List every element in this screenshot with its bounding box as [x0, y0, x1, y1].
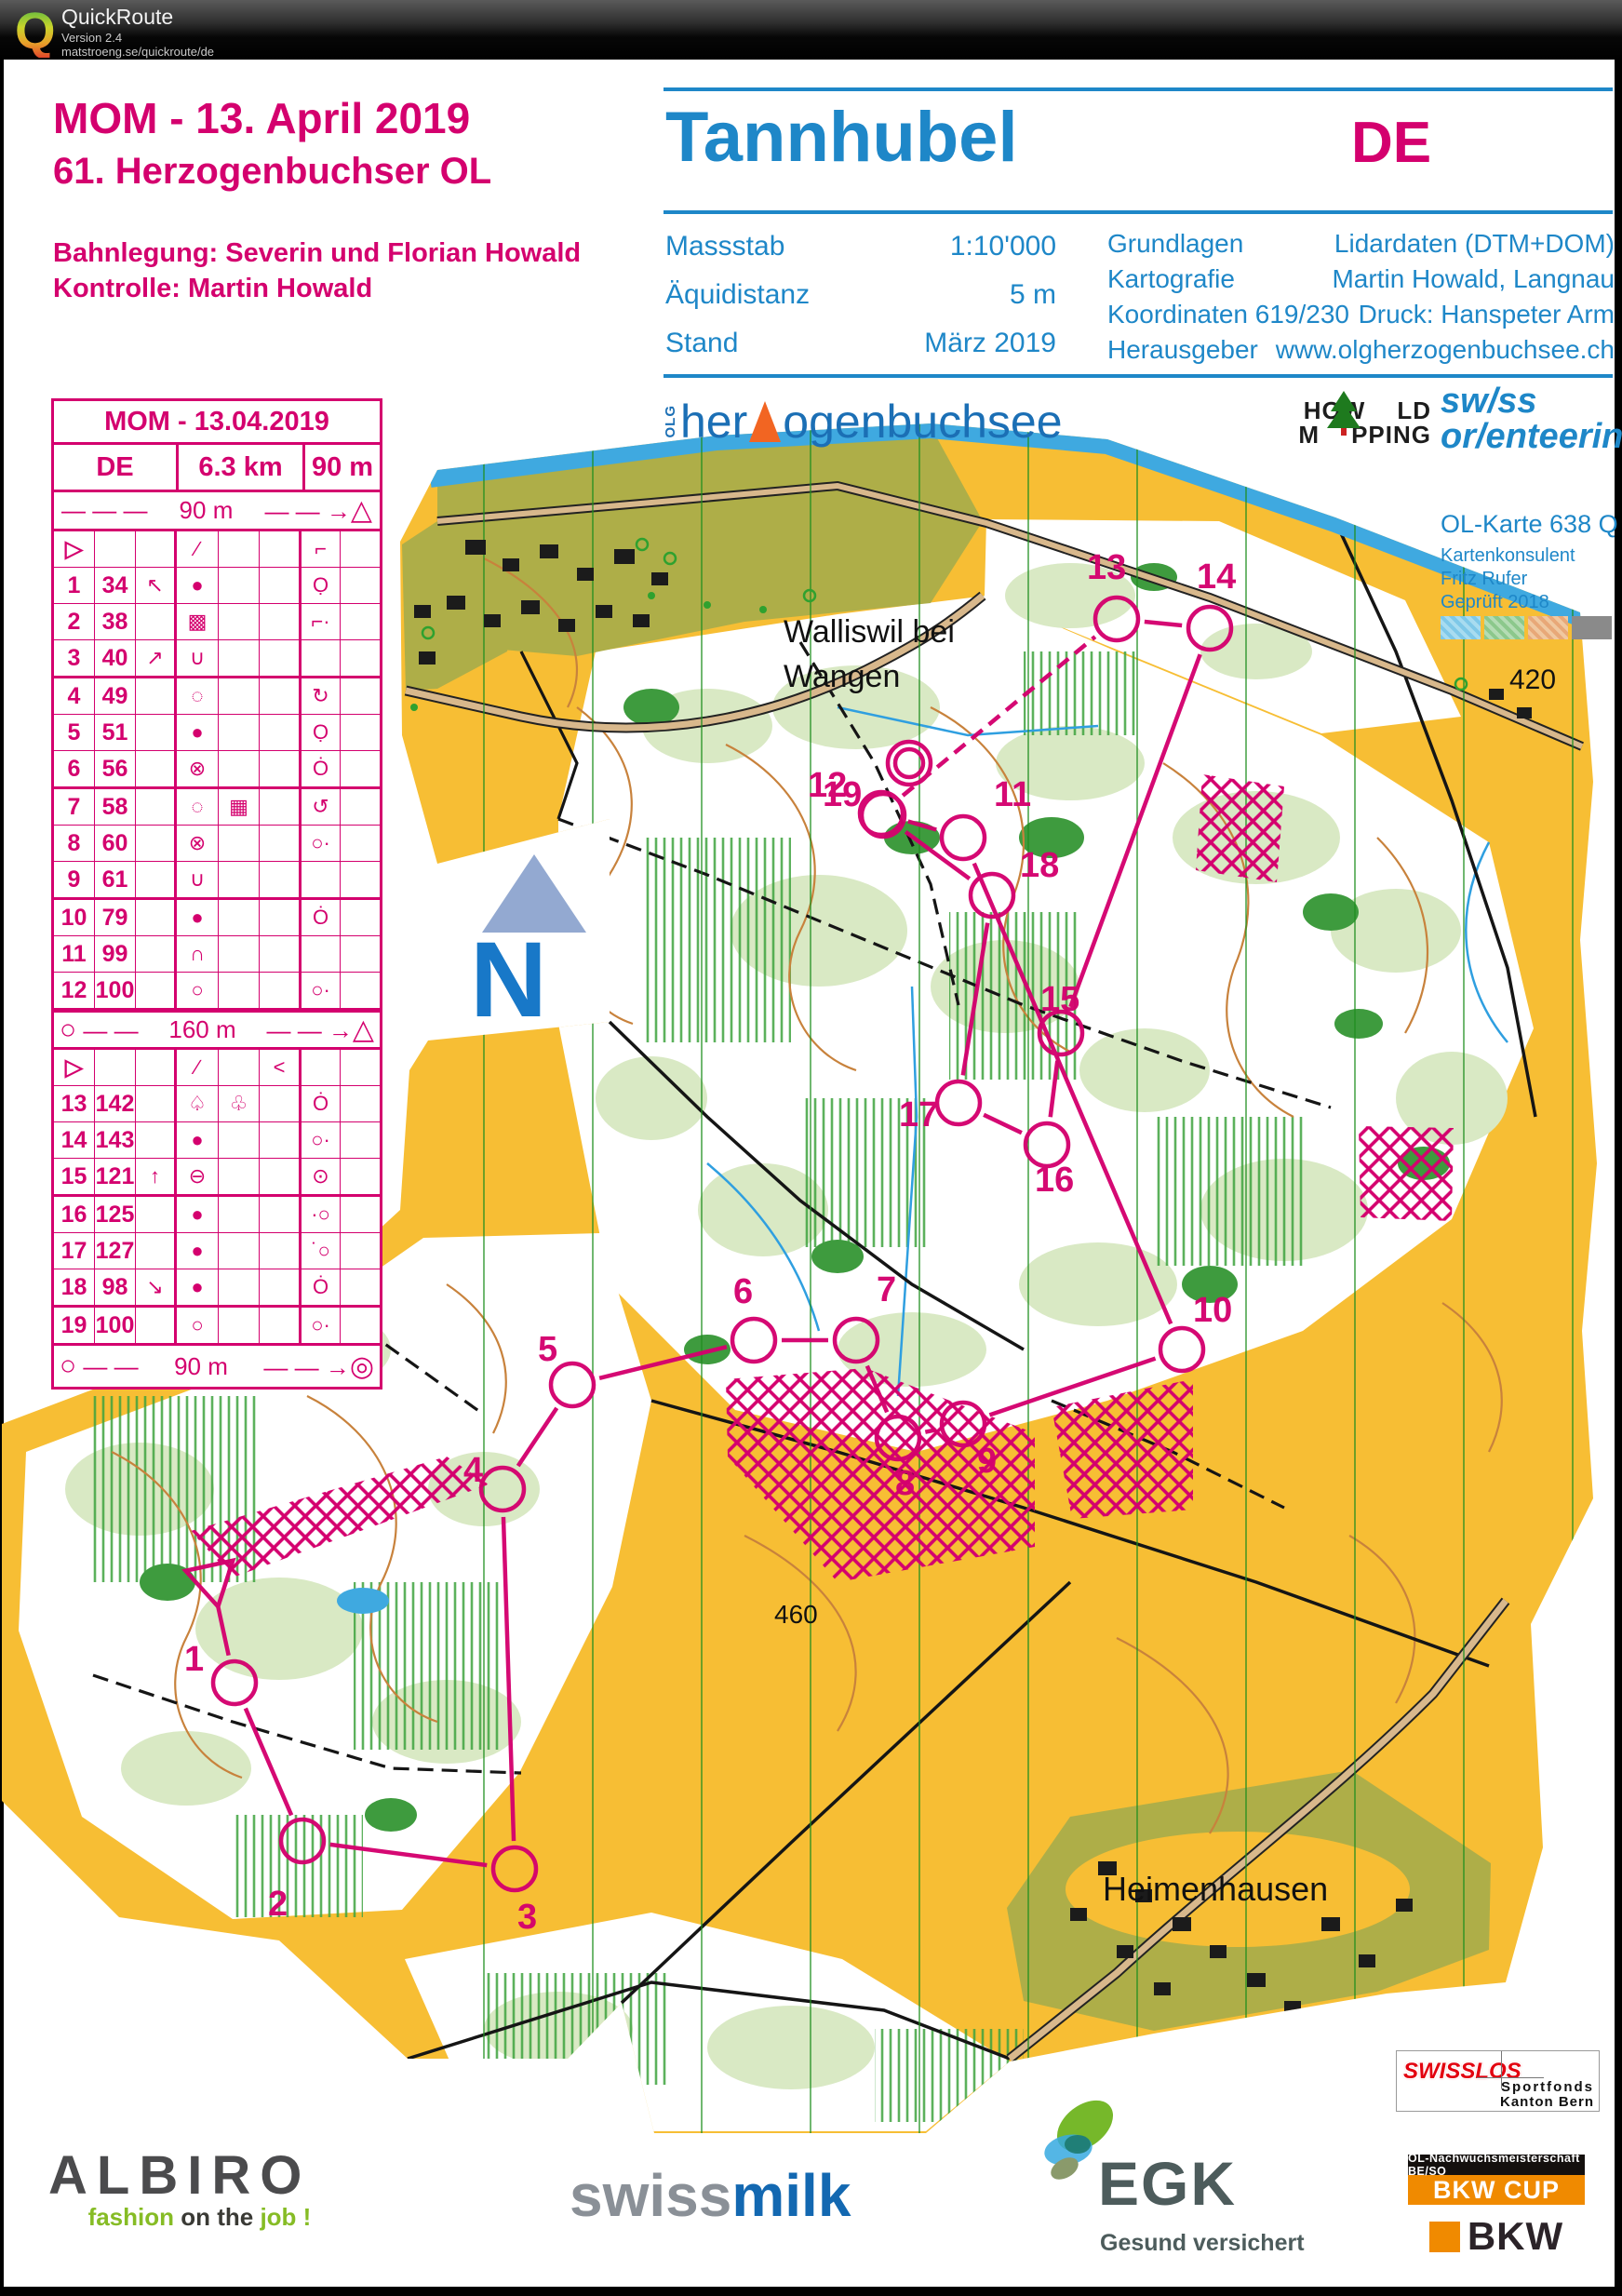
svg-text:N: N	[470, 920, 547, 1040]
control-number: 6	[733, 1272, 753, 1311]
control-row: 340↗∪	[54, 640, 380, 678]
svg-text:Q: Q	[15, 2, 56, 58]
swatch-gray	[1572, 616, 1612, 639]
course-leg	[925, 1430, 935, 1431]
bkw-cup-logo: OL-Nachwuchsmeisterschaft BE/SO BKW CUP …	[1408, 2155, 1585, 2259]
divider-bottom	[664, 374, 1613, 378]
info-grundlagen: GrundlagenLidardaten (DTM+DOM)	[1107, 229, 1615, 259]
tree-icon	[1327, 391, 1361, 436]
quickroute-logo-icon: Q	[13, 2, 58, 58]
control-number: 19	[823, 775, 862, 814]
geprueft-label: Geprüft 2018	[1441, 592, 1549, 613]
control-number: 15	[1040, 980, 1079, 1019]
app-version: Version 2.4	[61, 31, 122, 45]
control-row: 551●Ọ	[54, 715, 380, 751]
ol-karte-number: OL-Karte 638 Q	[1441, 510, 1618, 539]
divider-mid	[664, 210, 1613, 214]
bkw-square-icon	[1429, 2222, 1460, 2252]
swatch-orange	[1528, 616, 1568, 639]
event-title: MOM - 13. April 2019	[53, 93, 470, 143]
control-number: 10	[1193, 1291, 1232, 1330]
control-number: 11	[994, 775, 1031, 814]
info-kartografie: KartografieMartin Howald, Langnau	[1107, 264, 1615, 294]
swissmilk-logo: swissmilk	[570, 2161, 851, 2230]
control-row: 1199∩	[54, 936, 380, 973]
info-herausgeber: Herausgeberwww.olgherzogenbuchsee.ch	[1107, 335, 1615, 365]
control-row: 656⊗Ȯ	[54, 751, 380, 789]
control-number: 13	[1087, 548, 1126, 587]
pond	[337, 1588, 389, 1614]
control-row: ▷∕<	[54, 1050, 380, 1086]
info-koordinaten: Koordinaten 619/230Druck: Hanspeter Arm	[1107, 300, 1615, 329]
swisslos-logo: SWISSLOS Sportfonds Kanton Bern	[1396, 2050, 1600, 2112]
card-marked-route: ○ — —160 m— — →△	[54, 1011, 380, 1050]
window-titlebar[interactable]: Q QuickRoute Version 2.4 matstroeng.se/q…	[0, 0, 1622, 60]
north-arrow: N	[470, 854, 586, 1040]
control-number: 3	[517, 1898, 537, 1937]
control-row: ▷∕⌐	[54, 531, 380, 568]
course-code: DE	[1351, 110, 1431, 176]
map-color-swatches	[1441, 616, 1612, 639]
control-number: 1	[184, 1640, 204, 1679]
info-massstab: Massstab1:10'000	[665, 231, 1056, 262]
control-number: 7	[877, 1270, 896, 1309]
label-heimenhausen: Heimenhausen	[1103, 1870, 1328, 1908]
swiss-orienteering-logo: sw/ss or/enteering	[1441, 383, 1622, 454]
controller: Kontrolle: Martin Howald	[53, 274, 372, 304]
quickroute-window: { "titlebar": { "app": "QuickRoute", "ve…	[0, 0, 1622, 2296]
card-start-distance: — — —90 m— — →△	[54, 492, 380, 531]
control-number: 17	[899, 1095, 938, 1135]
swatch-blue	[1441, 616, 1481, 639]
control-row: 238▩⌐·	[54, 604, 380, 640]
control-number: 4	[463, 1451, 483, 1490]
control-row: 13142♤♧Ȯ	[54, 1086, 380, 1122]
control-number: 8	[895, 1464, 915, 1503]
control-description-sheet: MOM - 13.04.2019DE6.3 km90 m— — —90 m— —…	[51, 398, 382, 1390]
olg-herzogenbuchsee-logo: OLG her ogenbuchsee	[663, 395, 1063, 449]
egk-logo: EGK Gesund versichert	[1040, 2092, 1338, 2199]
swatch-green	[1484, 616, 1524, 639]
info-aequidistanz: Äquidistanz5 m	[665, 279, 1056, 311]
card-finish-distance: ○ — —90 m— — →◎	[54, 1344, 380, 1387]
control-row: 961∪	[54, 862, 380, 900]
label-elevation-420: 420	[1509, 665, 1556, 695]
app-title: QuickRoute	[61, 5, 173, 30]
control-row: 134↖●Ọ	[54, 568, 380, 604]
kartenkonsulent-name: Fritz Rufer	[1441, 569, 1527, 590]
control-row: 19100○○·	[54, 1308, 380, 1344]
control-number: 5	[538, 1330, 557, 1369]
course-setter: Bahnlegung: Severin und Florian Howald	[53, 238, 581, 269]
albiro-logo: ALBIRO fashion on the job !	[48, 2144, 311, 2232]
label-elevation-460: 460	[774, 1600, 818, 1629]
control-row: 17127●˙○	[54, 1233, 380, 1269]
control-row: 860⊗○·	[54, 826, 380, 862]
event-subtitle: 61. Herzogenbuchser OL	[53, 151, 491, 193]
control-row: 16125●·○	[54, 1197, 380, 1233]
control-number: 18	[1020, 846, 1059, 885]
control-row: 758◌▦↺	[54, 789, 380, 826]
control-row: 15121↑⊖⊙	[54, 1159, 380, 1197]
control-row: 449◌↻	[54, 678, 380, 715]
divider-top	[664, 87, 1613, 91]
orange-triangle-icon	[749, 401, 781, 442]
label-walliswil-line2: Wangen	[784, 659, 900, 694]
howald-mapping-logo: HOWLD MPPING	[1254, 398, 1431, 447]
app-url: matstroeng.se/quickroute/de	[61, 45, 214, 59]
control-number: 2	[268, 1885, 288, 1924]
card-class-row: DE6.3 km90 m	[54, 445, 380, 492]
card-title: MOM - 13.04.2019	[54, 401, 380, 445]
control-number: 14	[1197, 557, 1236, 597]
control-number: 16	[1035, 1161, 1074, 1200]
map-title: Tannhubel	[665, 97, 1018, 178]
info-stand: StandMärz 2019	[665, 328, 1056, 359]
control-row: 14143●○·	[54, 1122, 380, 1159]
control-row: 1898↘●Ȯ	[54, 1269, 380, 1308]
label-walliswil-line1: Walliswil bei	[784, 614, 955, 650]
control-row: 12100○○·	[54, 973, 380, 1011]
control-row: 1079●Ȯ	[54, 900, 380, 936]
kartenkonsulent-label: Kartenkonsulent	[1441, 545, 1575, 567]
control-number: 9	[977, 1442, 997, 1481]
